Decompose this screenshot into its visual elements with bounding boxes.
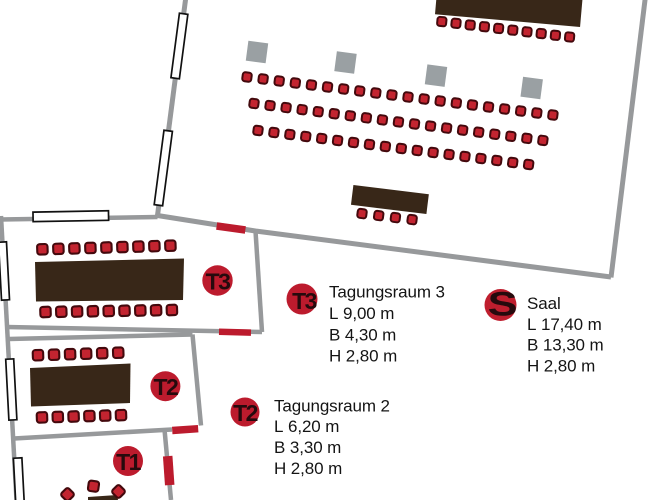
svg-text:L 6,20 m: L 6,20 m: [274, 417, 339, 436]
svg-text:B 4,30 m: B 4,30 m: [329, 325, 396, 344]
svg-text:B 13,30 m: B 13,30 m: [527, 336, 604, 355]
svg-text:L 9,00 m: L 9,00 m: [329, 304, 394, 323]
svg-text:T1: T1: [116, 449, 142, 475]
svg-text:T2: T2: [233, 400, 258, 426]
svg-text:T3: T3: [292, 288, 317, 314]
svg-text:Tagungsraum 3: Tagungsraum 3: [329, 283, 445, 302]
svg-text:H 2,80 m: H 2,80 m: [527, 356, 595, 375]
svg-text:Saal: Saal: [527, 294, 561, 313]
svg-text:T3: T3: [206, 269, 231, 295]
svg-text:L 17,40 m: L 17,40 m: [527, 315, 602, 334]
svg-text:H 2,80 m: H 2,80 m: [329, 347, 397, 366]
svg-text:S: S: [488, 286, 518, 324]
svg-text:T2: T2: [153, 374, 178, 400]
svg-text:B 3,30 m: B 3,30 m: [274, 438, 341, 457]
svg-text:Tagungsraum 2: Tagungsraum 2: [274, 396, 390, 415]
svg-text:H 2,80 m: H 2,80 m: [274, 459, 342, 478]
